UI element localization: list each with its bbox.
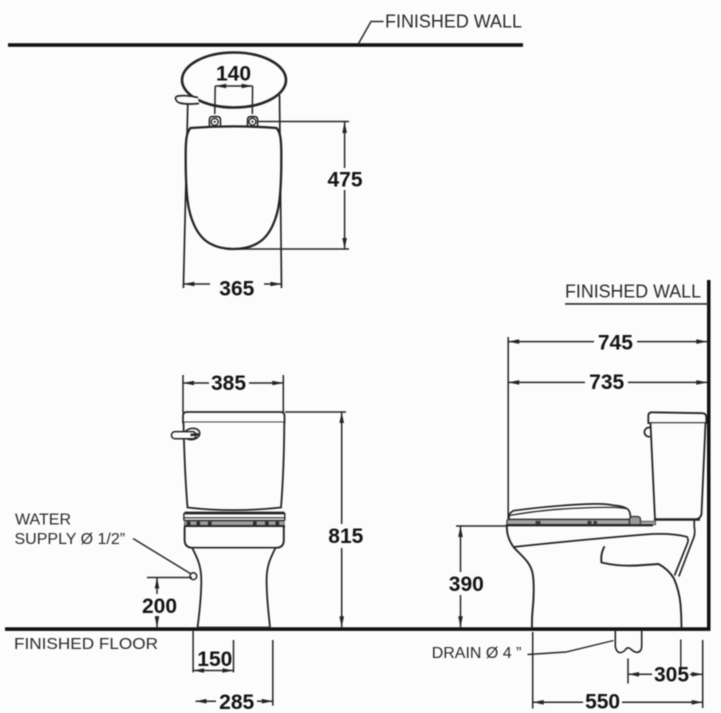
- svg-text:365: 365: [219, 278, 254, 301]
- svg-text:140: 140: [216, 63, 251, 86]
- svg-text:475: 475: [327, 169, 362, 192]
- svg-text:550: 550: [585, 691, 620, 713]
- svg-text:FINISHED FLOOR: FINISHED FLOOR: [14, 636, 158, 653]
- svg-text:285: 285: [219, 691, 254, 713]
- svg-text:FINISHED WALL: FINISHED WALL: [565, 282, 701, 302]
- svg-text:SUPPLY Ø 1/2”: SUPPLY Ø 1/2”: [15, 531, 126, 548]
- svg-text:735: 735: [589, 371, 624, 394]
- svg-text:745: 745: [598, 332, 633, 355]
- svg-text:150: 150: [197, 648, 232, 671]
- svg-text:DRAIN Ø 4 ”: DRAIN Ø 4 ”: [432, 645, 522, 662]
- svg-text:200: 200: [142, 595, 177, 618]
- svg-text:FINISHED WALL: FINISHED WALL: [385, 12, 522, 32]
- svg-text:305: 305: [654, 664, 689, 687]
- svg-text:815: 815: [328, 525, 363, 548]
- svg-text:390: 390: [449, 573, 484, 596]
- svg-text:385: 385: [211, 372, 246, 395]
- svg-text:WATER: WATER: [15, 512, 71, 529]
